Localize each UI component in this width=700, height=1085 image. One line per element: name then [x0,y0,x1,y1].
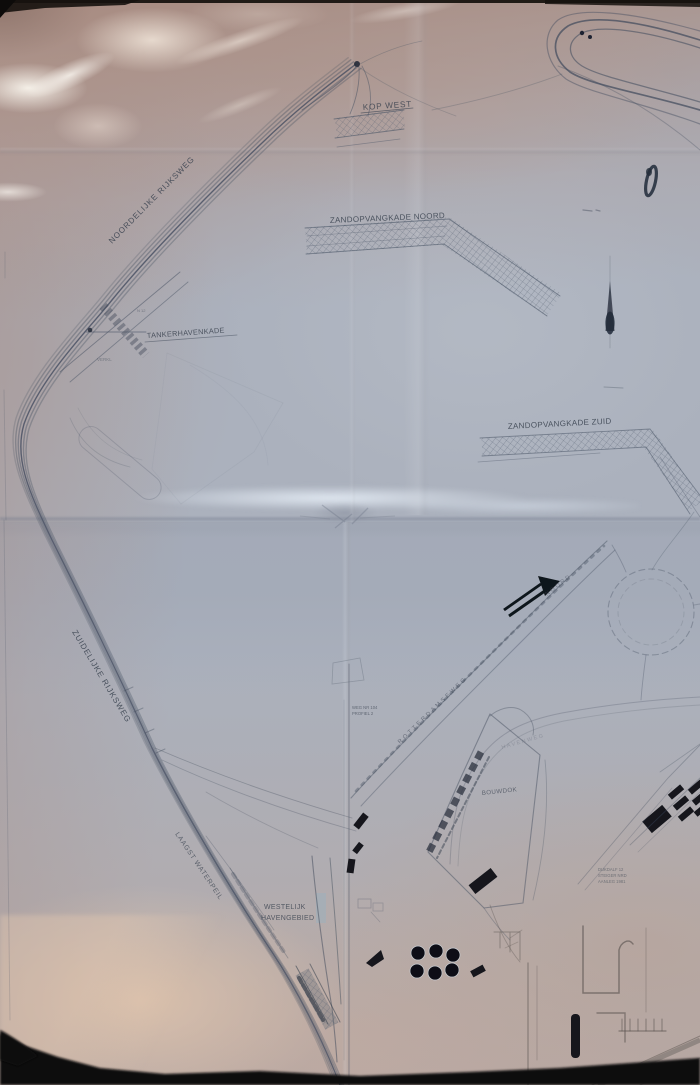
svg-text:DUKDALF 12: DUKDALF 12 [598,867,624,872]
svg-text:STEIGER NRD: STEIGER NRD [598,873,627,878]
svg-text:KOP WEST: KOP WEST [362,99,412,112]
svg-text:WESTELIJK: WESTELIJK [264,904,306,911]
svg-text:VERKL: VERKL [97,357,112,362]
svg-text:BOUWDOK: BOUWDOK [481,786,517,797]
svg-text:WEG NR 104: WEG NR 104 [352,705,378,710]
svg-text:ROTTERDAMSEWEG: ROTTERDAMSEWEG [397,676,469,746]
svg-text:HAVENGEBIED: HAVENGEBIED [261,915,314,922]
svg-text:N 12: N 12 [137,308,146,313]
svg-text:AANLEG 1981: AANLEG 1981 [598,879,626,884]
svg-text:TANKERHAVENKADE: TANKERHAVENKADE [147,326,225,340]
svg-text:ZANDOPVANGKADE ZUID: ZANDOPVANGKADE ZUID [508,417,612,431]
svg-text:PROFIEL 2: PROFIEL 2 [352,711,374,716]
